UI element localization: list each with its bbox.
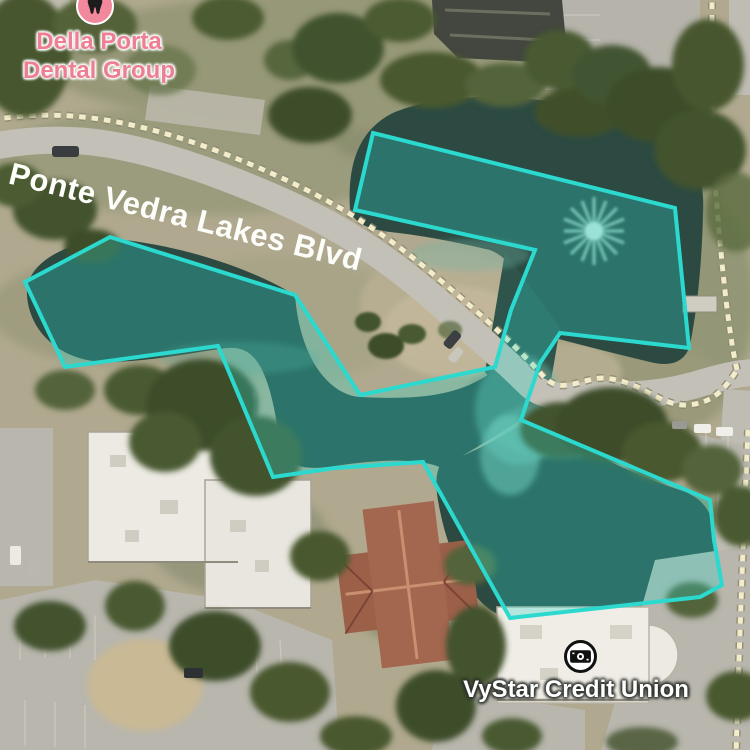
satellite-map-viewport[interactable]: Ponte Vedra Lakes Blvd Della Porta Denta… [0,0,750,750]
banknote-icon[interactable] [564,640,597,673]
poi-label-vystar[interactable]: VyStar Credit Union [440,676,712,704]
banknote-glyph [568,644,593,669]
poi-dental-line2: Dental Group [10,56,188,85]
small-structure [683,296,717,312]
poi-dental-line1: Della Porta [10,27,188,56]
tooth-glyph [83,0,107,18]
poi-label-dental[interactable]: Della Porta Dental Group [10,27,188,85]
aerial-imagery-layer [0,0,750,750]
